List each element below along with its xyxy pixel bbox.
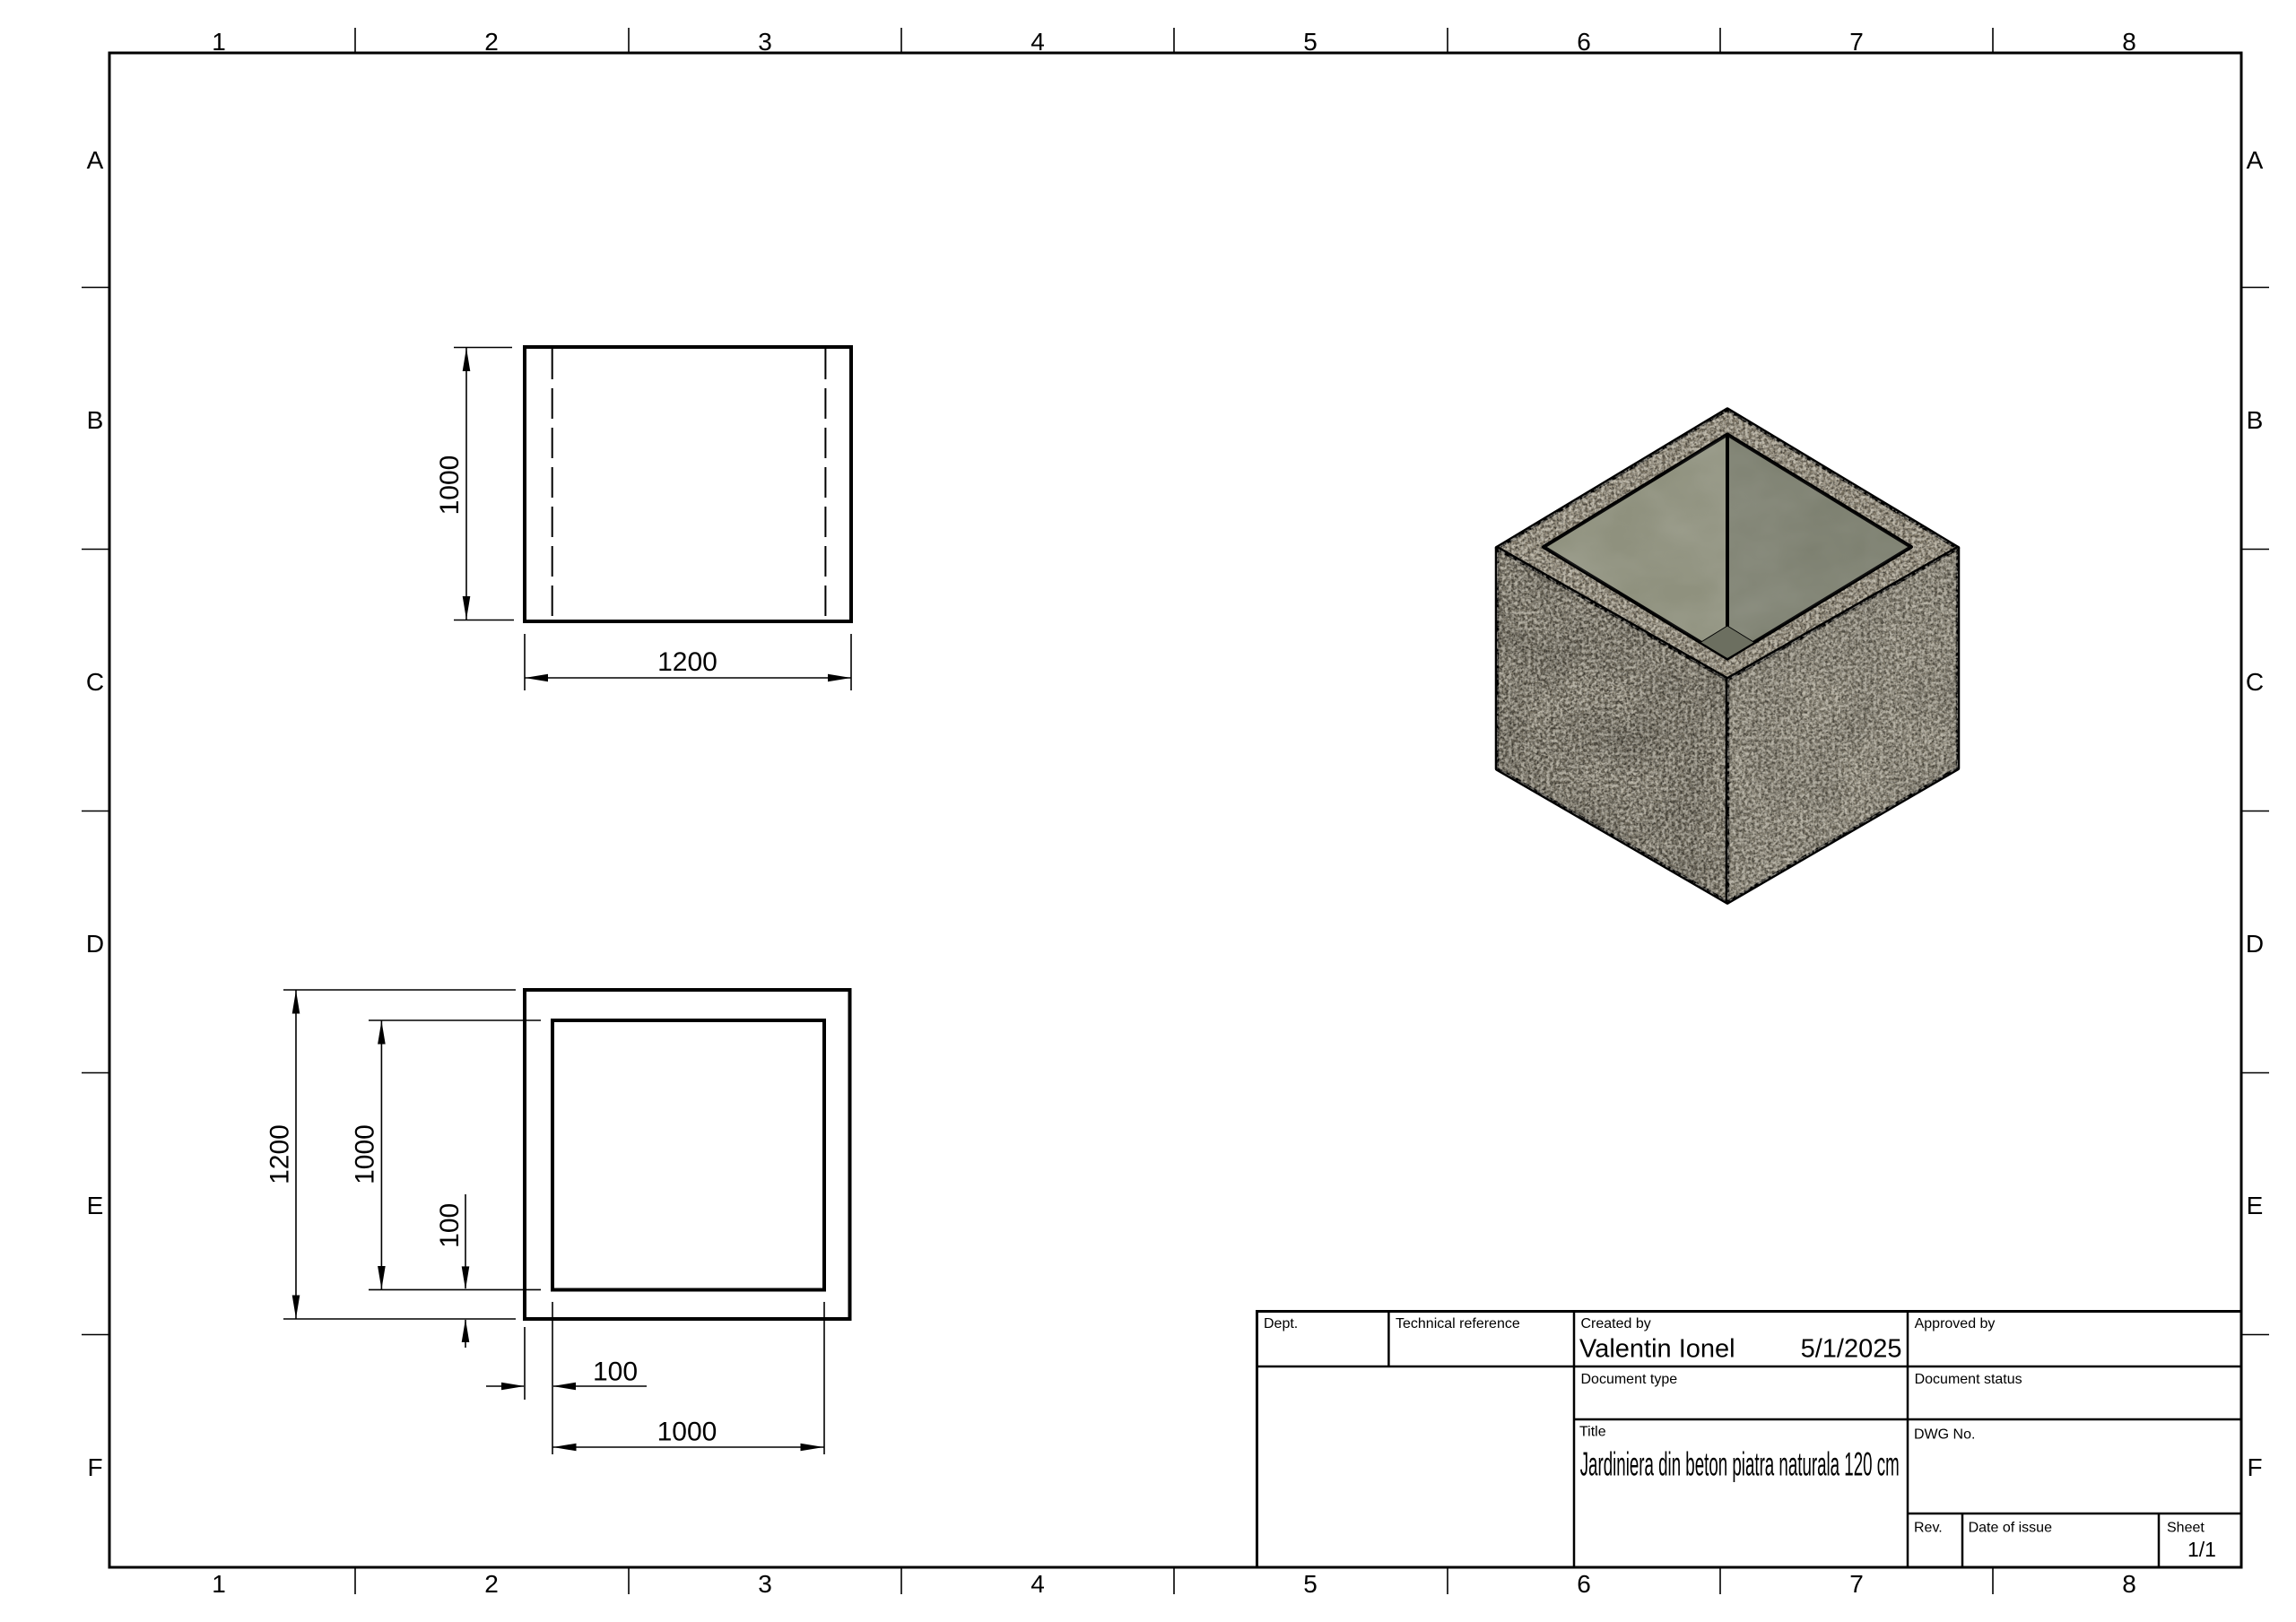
svg-text:6: 6 xyxy=(1577,1570,1591,1598)
svg-text:Jardiniera din beton piatra na: Jardiniera din beton piatra naturala 120… xyxy=(1580,1445,1900,1482)
svg-text:D: D xyxy=(2246,930,2264,958)
svg-text:6: 6 xyxy=(1577,28,1591,56)
svg-text:Dept.: Dept. xyxy=(1264,1316,1298,1331)
svg-text:7: 7 xyxy=(1849,1570,1864,1598)
svg-text:5: 5 xyxy=(1303,28,1318,56)
svg-text:2: 2 xyxy=(484,1570,499,1598)
svg-text:8: 8 xyxy=(2122,1570,2136,1598)
svg-text:A: A xyxy=(87,146,104,174)
svg-text:4: 4 xyxy=(1031,1570,1045,1598)
svg-text:1/1: 1/1 xyxy=(2187,1538,2216,1561)
svg-text:C: C xyxy=(86,668,104,696)
svg-text:E: E xyxy=(87,1192,104,1219)
svg-text:D: D xyxy=(86,930,104,958)
svg-text:Date of issue: Date of issue xyxy=(1969,1521,2052,1536)
svg-text:B: B xyxy=(87,406,104,434)
svg-text:2: 2 xyxy=(484,28,499,56)
svg-text:4: 4 xyxy=(1031,28,1045,56)
svg-text:8: 8 xyxy=(2122,28,2136,56)
svg-text:Rev.: Rev. xyxy=(1914,1521,1943,1536)
svg-text:Sheet: Sheet xyxy=(2167,1521,2205,1536)
svg-text:100: 100 xyxy=(435,1203,465,1248)
svg-text:1000: 1000 xyxy=(351,1124,380,1184)
svg-text:5: 5 xyxy=(1303,1570,1318,1598)
svg-text:1: 1 xyxy=(212,1570,226,1598)
svg-text:1000: 1000 xyxy=(435,455,465,516)
svg-text:F: F xyxy=(87,1453,102,1481)
svg-text:Technical reference: Technical reference xyxy=(1396,1316,1520,1331)
svg-text:1: 1 xyxy=(212,28,226,56)
svg-text:E: E xyxy=(2247,1192,2264,1219)
svg-text:5/1/2025: 5/1/2025 xyxy=(1801,1335,1902,1364)
svg-text:Document status: Document status xyxy=(1915,1372,2022,1387)
svg-text:A: A xyxy=(2247,146,2264,174)
svg-text:1200: 1200 xyxy=(265,1124,295,1184)
svg-text:1000: 1000 xyxy=(657,1418,717,1447)
svg-text:7: 7 xyxy=(1849,28,1864,56)
svg-text:DWG No.: DWG No. xyxy=(1914,1427,1975,1443)
svg-text:3: 3 xyxy=(758,1570,772,1598)
svg-text:C: C xyxy=(2246,668,2264,696)
svg-text:Title: Title xyxy=(1579,1425,1606,1440)
svg-text:Created by: Created by xyxy=(1581,1316,1651,1331)
svg-text:Approved by: Approved by xyxy=(1915,1316,1996,1331)
svg-text:3: 3 xyxy=(758,28,772,56)
svg-text:B: B xyxy=(2247,406,2264,434)
svg-text:Document type: Document type xyxy=(1581,1372,1678,1387)
svg-text:Valentin Ionel: Valentin Ionel xyxy=(1579,1335,1735,1364)
svg-text:F: F xyxy=(2247,1453,2262,1481)
svg-text:1200: 1200 xyxy=(657,647,717,677)
svg-text:100: 100 xyxy=(593,1357,638,1387)
